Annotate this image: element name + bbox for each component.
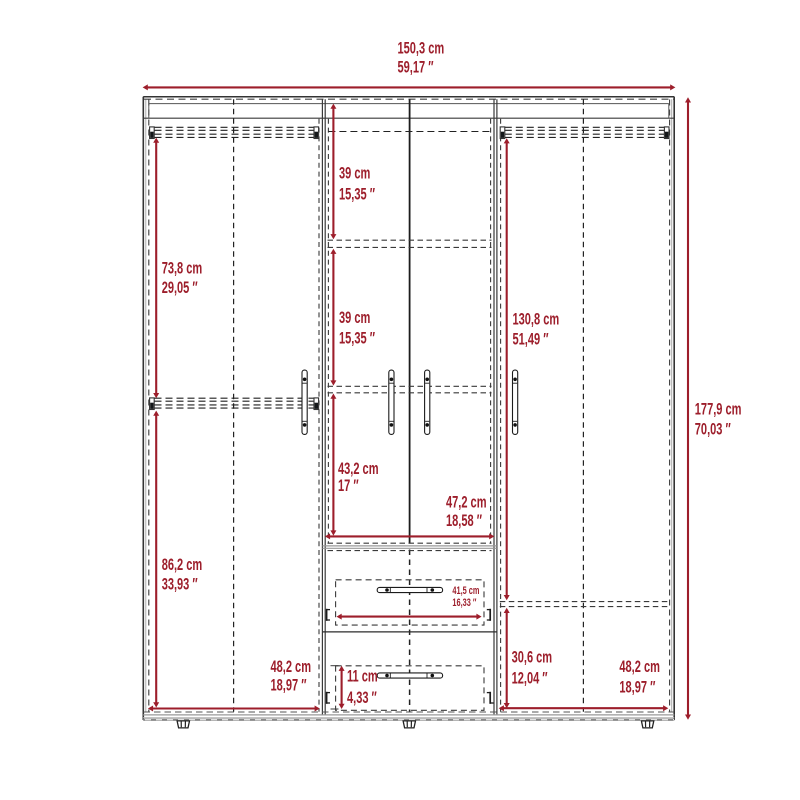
svg-text:86,2 cm: 86,2 cm — [162, 555, 203, 574]
svg-text:12,04 ″: 12,04 ″ — [512, 668, 548, 687]
svg-text:73,8 cm: 73,8 cm — [162, 258, 203, 277]
svg-text:150,3 cm: 150,3 cm — [398, 38, 445, 57]
svg-text:29,05 ″: 29,05 ″ — [162, 278, 198, 297]
svg-text:48,2 cm: 48,2 cm — [619, 657, 660, 676]
svg-text:33,93 ″: 33,93 ″ — [162, 574, 198, 593]
svg-text:130,8 cm: 130,8 cm — [512, 309, 559, 328]
svg-text:59,17 ″: 59,17 ″ — [398, 57, 434, 76]
svg-text:70,03 ″: 70,03 ″ — [695, 419, 731, 438]
svg-text:18,97 ″: 18,97 ″ — [619, 677, 655, 696]
svg-text:15,35 ″: 15,35 ″ — [339, 328, 375, 347]
svg-text:39 cm: 39 cm — [339, 308, 370, 327]
svg-text:43,2 cm: 43,2 cm — [338, 459, 379, 478]
svg-text:16,33 ″: 16,33 ″ — [452, 596, 476, 608]
svg-text:177,9 cm: 177,9 cm — [695, 399, 742, 418]
svg-text:51,49 ″: 51,49 ″ — [512, 329, 548, 348]
svg-text:39 cm: 39 cm — [339, 163, 370, 182]
svg-text:15,35 ″: 15,35 ″ — [339, 184, 375, 203]
svg-text:47,2 cm: 47,2 cm — [446, 492, 487, 511]
svg-text:41,5 cm: 41,5 cm — [452, 585, 479, 597]
svg-text:48,2 cm: 48,2 cm — [270, 657, 311, 676]
svg-text:18,97 ″: 18,97 ″ — [270, 675, 306, 694]
svg-text:30,6 cm: 30,6 cm — [512, 647, 553, 666]
svg-text:18,58 ″: 18,58 ″ — [446, 511, 482, 530]
svg-text:4,33 ″: 4,33 ″ — [347, 688, 377, 707]
svg-text:17 ″: 17 ″ — [338, 476, 359, 495]
svg-text:11 cm: 11 cm — [347, 666, 378, 685]
